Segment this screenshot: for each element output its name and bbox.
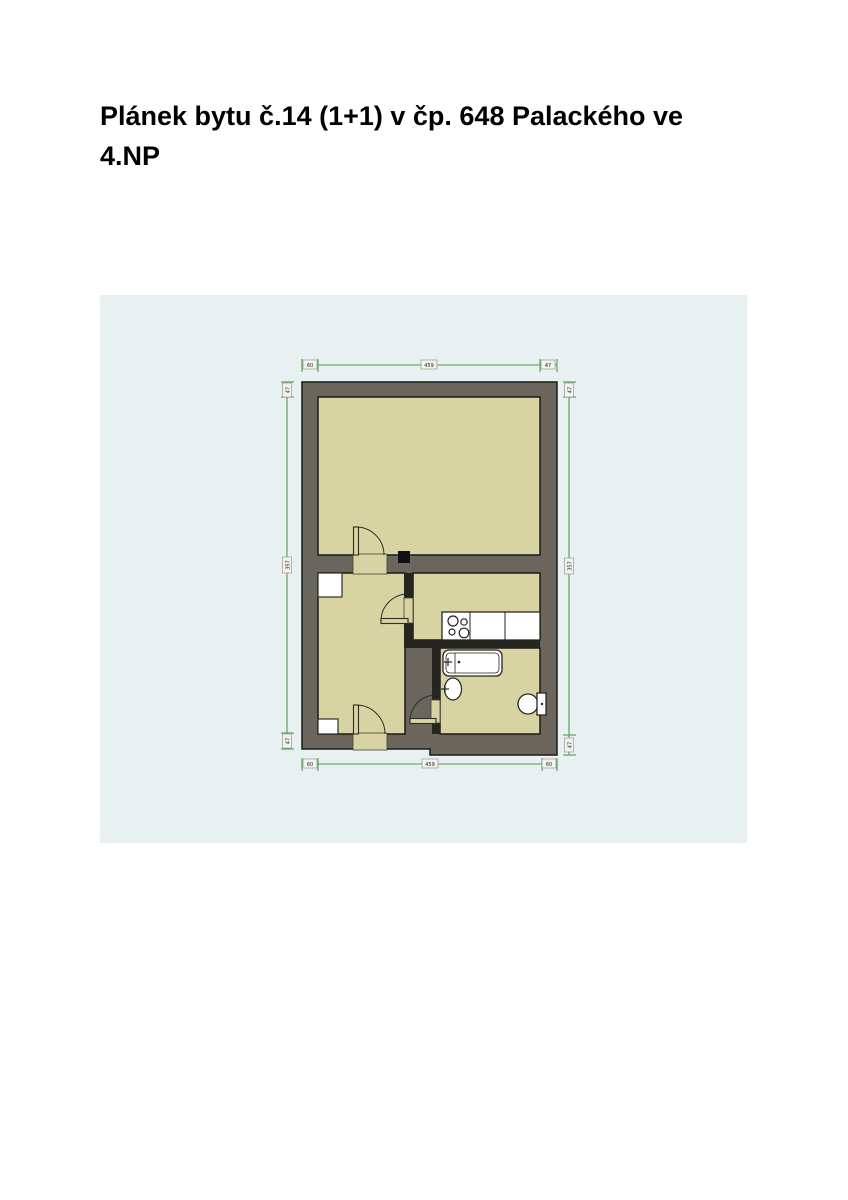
dim-right-top: 47 — [568, 387, 574, 393]
kitchen-counter — [442, 612, 540, 640]
opening-main-room — [353, 554, 387, 574]
dim-left-middle: 357 — [286, 560, 292, 570]
dim-right-bottom: 47 — [568, 742, 574, 748]
dim-right-middle: 357 — [568, 561, 574, 571]
dim-bottom-left: 60 — [307, 762, 313, 768]
niche-upper — [318, 573, 342, 597]
dim-bottom-right: 60 — [546, 762, 552, 768]
dim-bottom-middle: 459 — [425, 762, 435, 768]
dim-top-right: 47 — [545, 363, 551, 369]
niche-lower — [318, 719, 338, 734]
dim-top-middle: 459 — [424, 363, 434, 369]
flue-block — [398, 551, 410, 563]
dim-left-top: 47 — [286, 387, 292, 393]
opening-entrance — [353, 733, 387, 750]
toilet-icon — [518, 693, 546, 715]
page-title: Plánek bytu č.14 (1+1) v čp. 648 Palacké… — [100, 96, 748, 176]
main-room-floor — [318, 397, 540, 555]
floor-plan-drawing: 60 459 47 60 459 60 47 357 47 — [100, 295, 747, 843]
floor-plan-panel: 60 459 47 60 459 60 47 357 47 — [100, 295, 747, 843]
bathtub-icon — [443, 650, 502, 676]
dim-top-left: 60 — [307, 363, 313, 369]
dim-left-bottom: 47 — [286, 738, 292, 744]
